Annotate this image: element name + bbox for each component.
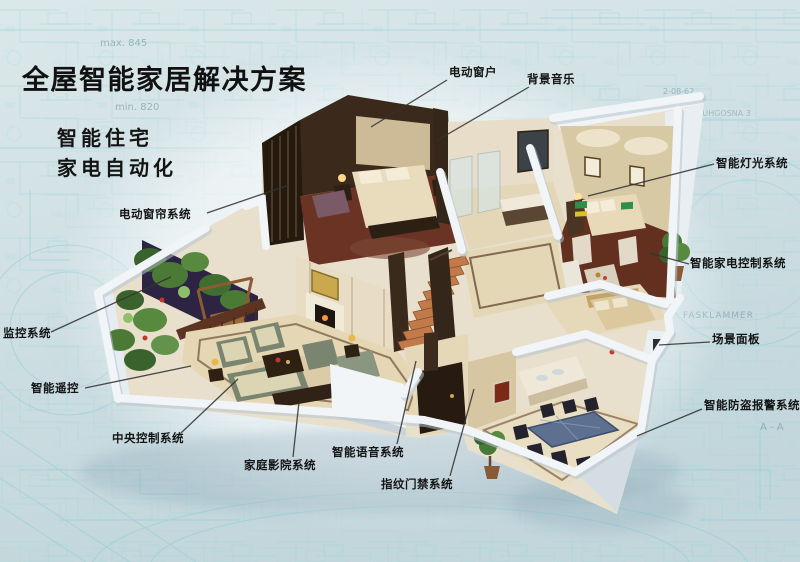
svg-text:JUHGOSNA 3: JUHGOSNA 3 [699,109,751,118]
bathroom-corridor [448,118,568,250]
headboard-panel [356,116,430,170]
label-electric-window: 电动窗户 [449,64,497,80]
label-monitoring: 监控系统 [3,325,51,341]
subtitle-line-1: 智能住宅 [57,122,153,151]
fingerprint-lock [450,394,454,398]
floor-lamp [212,359,219,366]
label-fingerprint: 指纹门禁系统 [381,476,453,492]
subtitle-line-2: 家电自动化 [57,152,177,181]
label-smart-remote: 智能遥控 [31,380,79,396]
bedside-lamp [338,174,346,182]
label-central-control: 中央控制系统 [112,430,184,446]
label-scene-panel: 场景面板 [712,331,760,347]
red-window [494,380,510,404]
label-voice-system: 智能语音系统 [332,444,404,460]
svg-text:max. 845: max. 845 [100,38,147,49]
page-title: 全屋智能家居解决方案 [22,58,307,97]
label-home-theater: 家庭影院系统 [244,457,316,473]
label-anti-theft: 智能防盗报警系统 [704,397,800,413]
label-appliance-control: 智能家电控制系统 [690,255,786,271]
smart-home-poster: max. 845 min. 820 FASKLAMMER A - A 2-08-… [0,0,800,562]
label-background-music: 背景音乐 [527,71,575,87]
wall-picture [585,157,600,177]
label-electric-curtain: 电动窗帘系统 [119,206,191,222]
svg-text:min. 820: min. 820 [115,102,159,113]
svg-text:A - A: A - A [760,422,784,433]
label-smart-lighting: 智能灯光系统 [716,155,788,171]
